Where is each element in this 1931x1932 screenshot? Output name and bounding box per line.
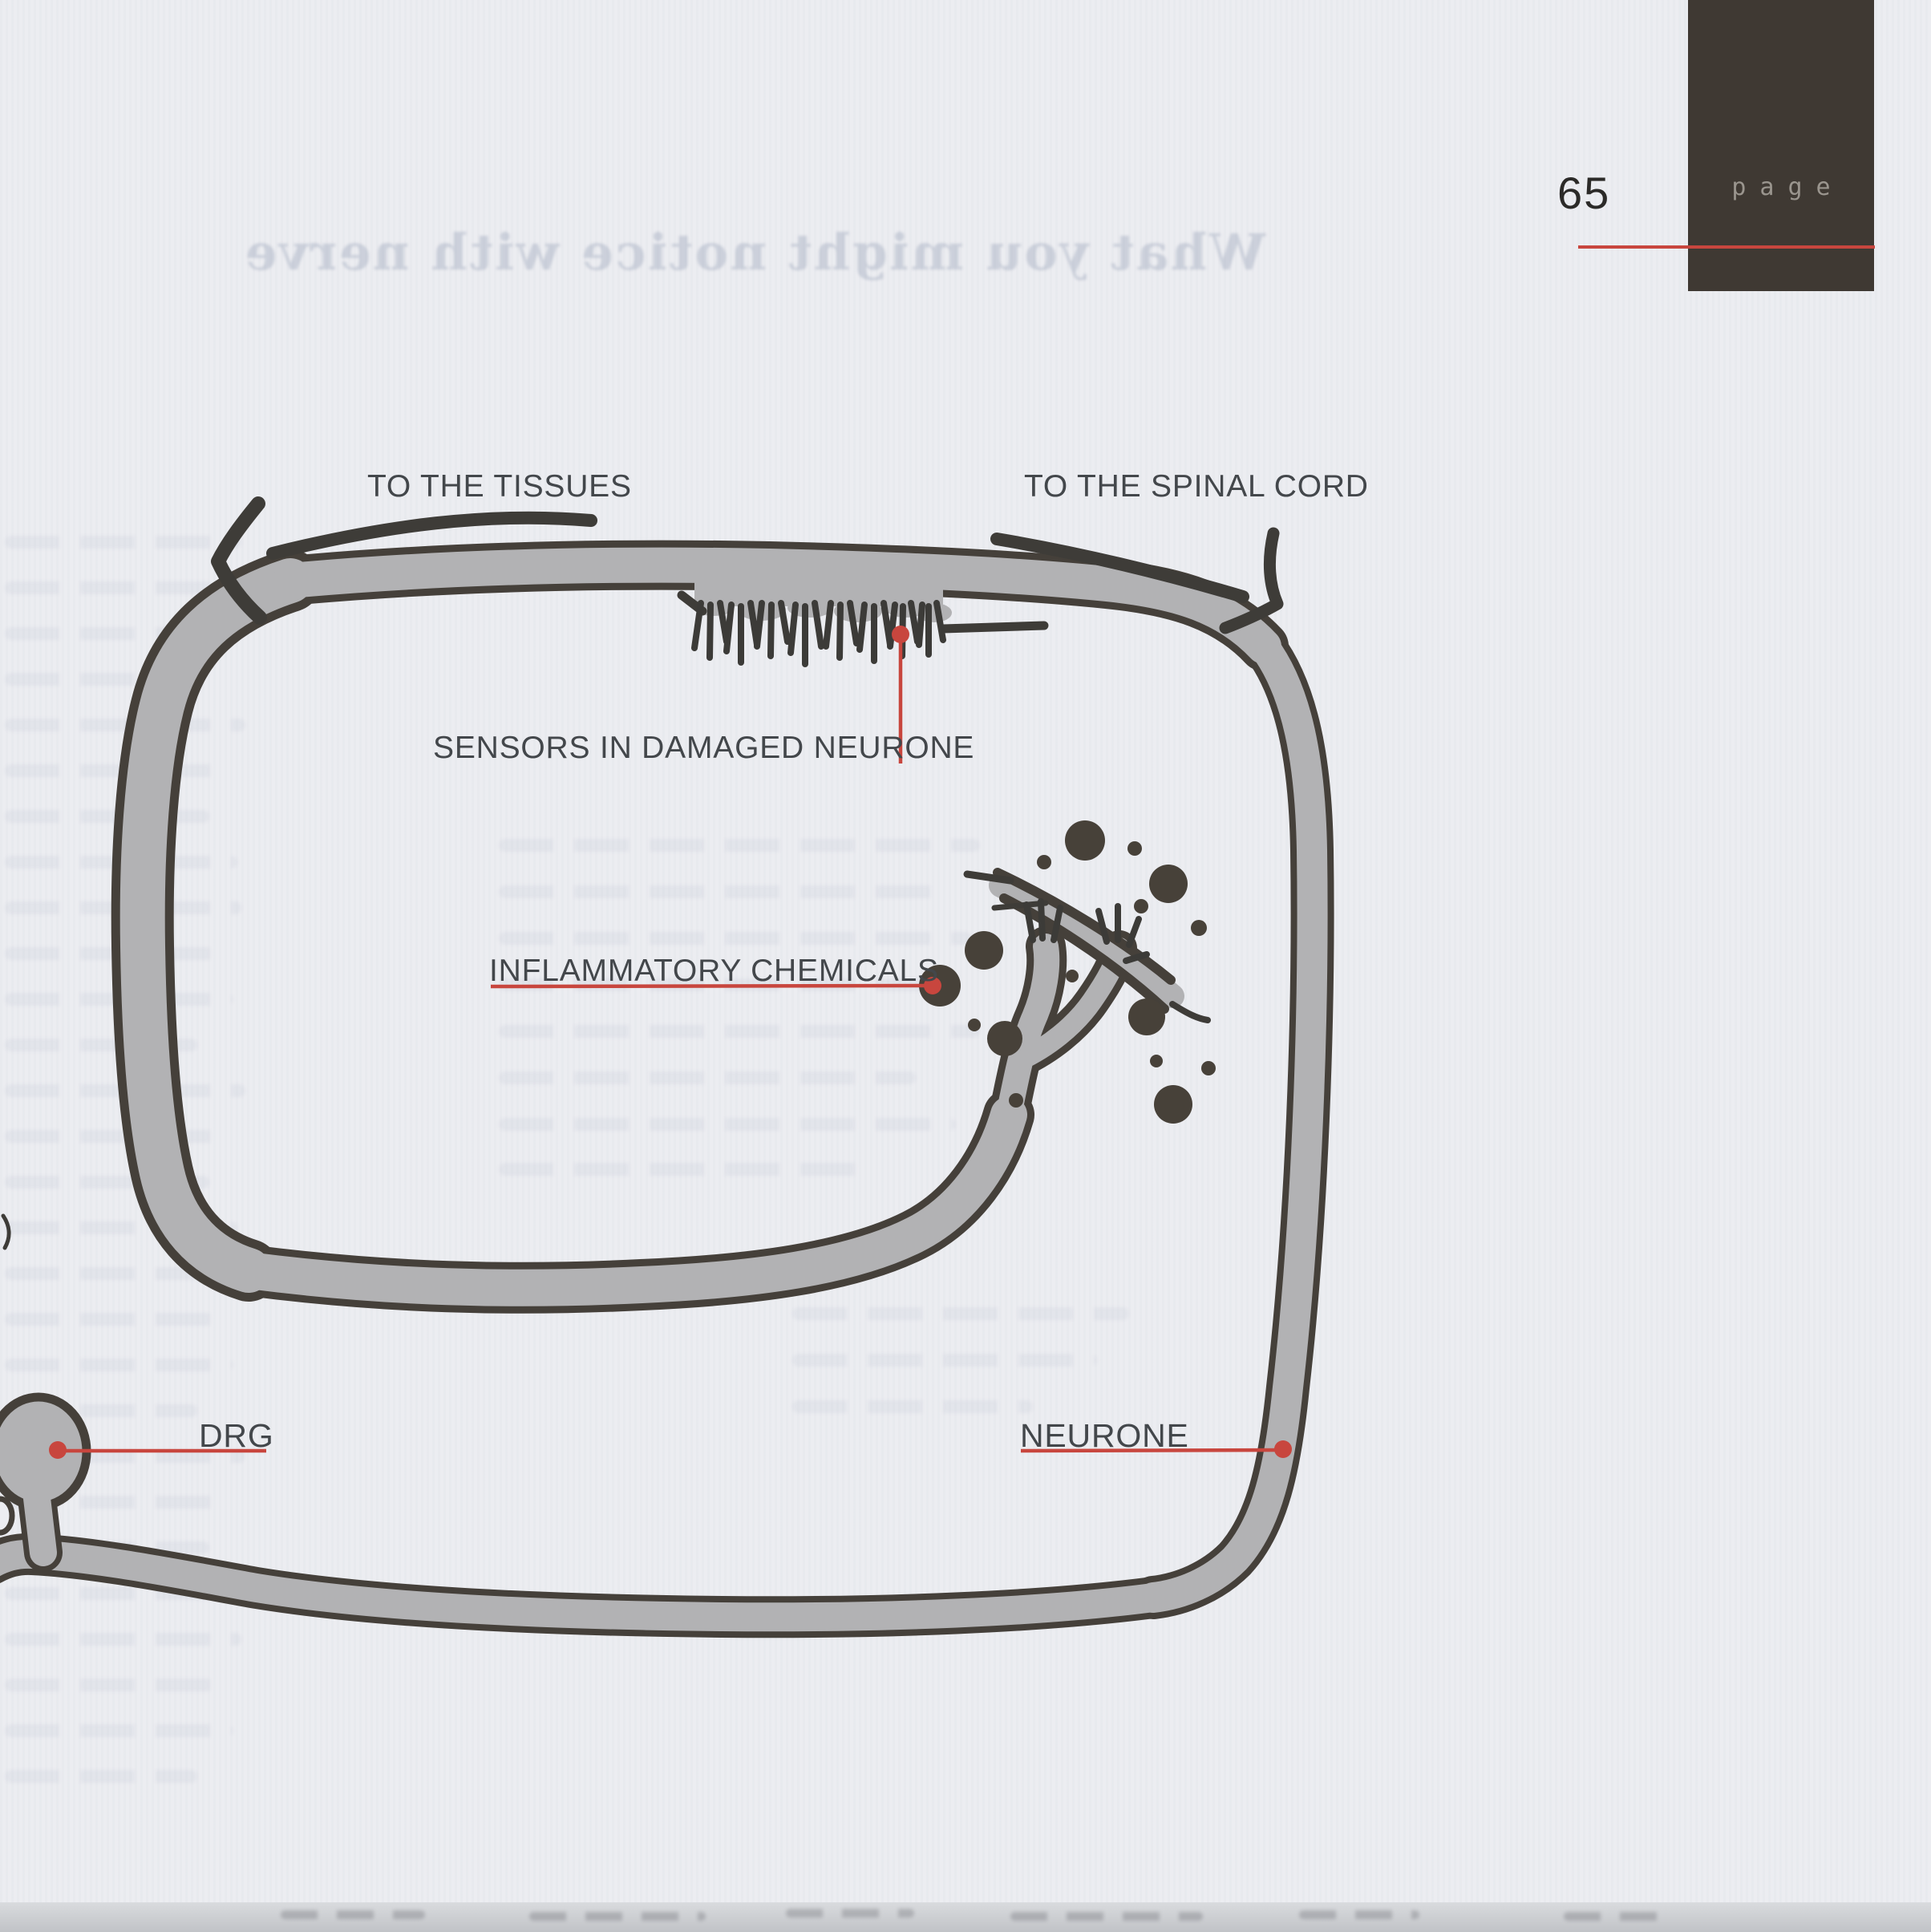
page-corner-label: page [1688,173,1874,201]
diagram-labels: TO THE TISSUES TO THE SPINAL CORD SENSOR… [0,0,1931,1932]
book-page: { "page_header": { "page_number": "65", … [0,0,1931,1932]
label-to-the-tissues: TO THE TISSUES [367,470,632,504]
label-inflammatory-chemicals: INFLAMMATORY CHEMICALS [489,954,939,989]
label-to-the-spinal-cord: TO THE SPINAL CORD [1024,470,1369,504]
label-drg: DRG [199,1418,274,1454]
label-sensors-in-damaged-neurone: SENSORS IN DAMAGED NEURONE [433,731,898,766]
page-number: 65 [1557,167,1610,219]
header-red-rule [1578,245,1875,249]
label-neurone: NEURONE [1020,1418,1189,1454]
